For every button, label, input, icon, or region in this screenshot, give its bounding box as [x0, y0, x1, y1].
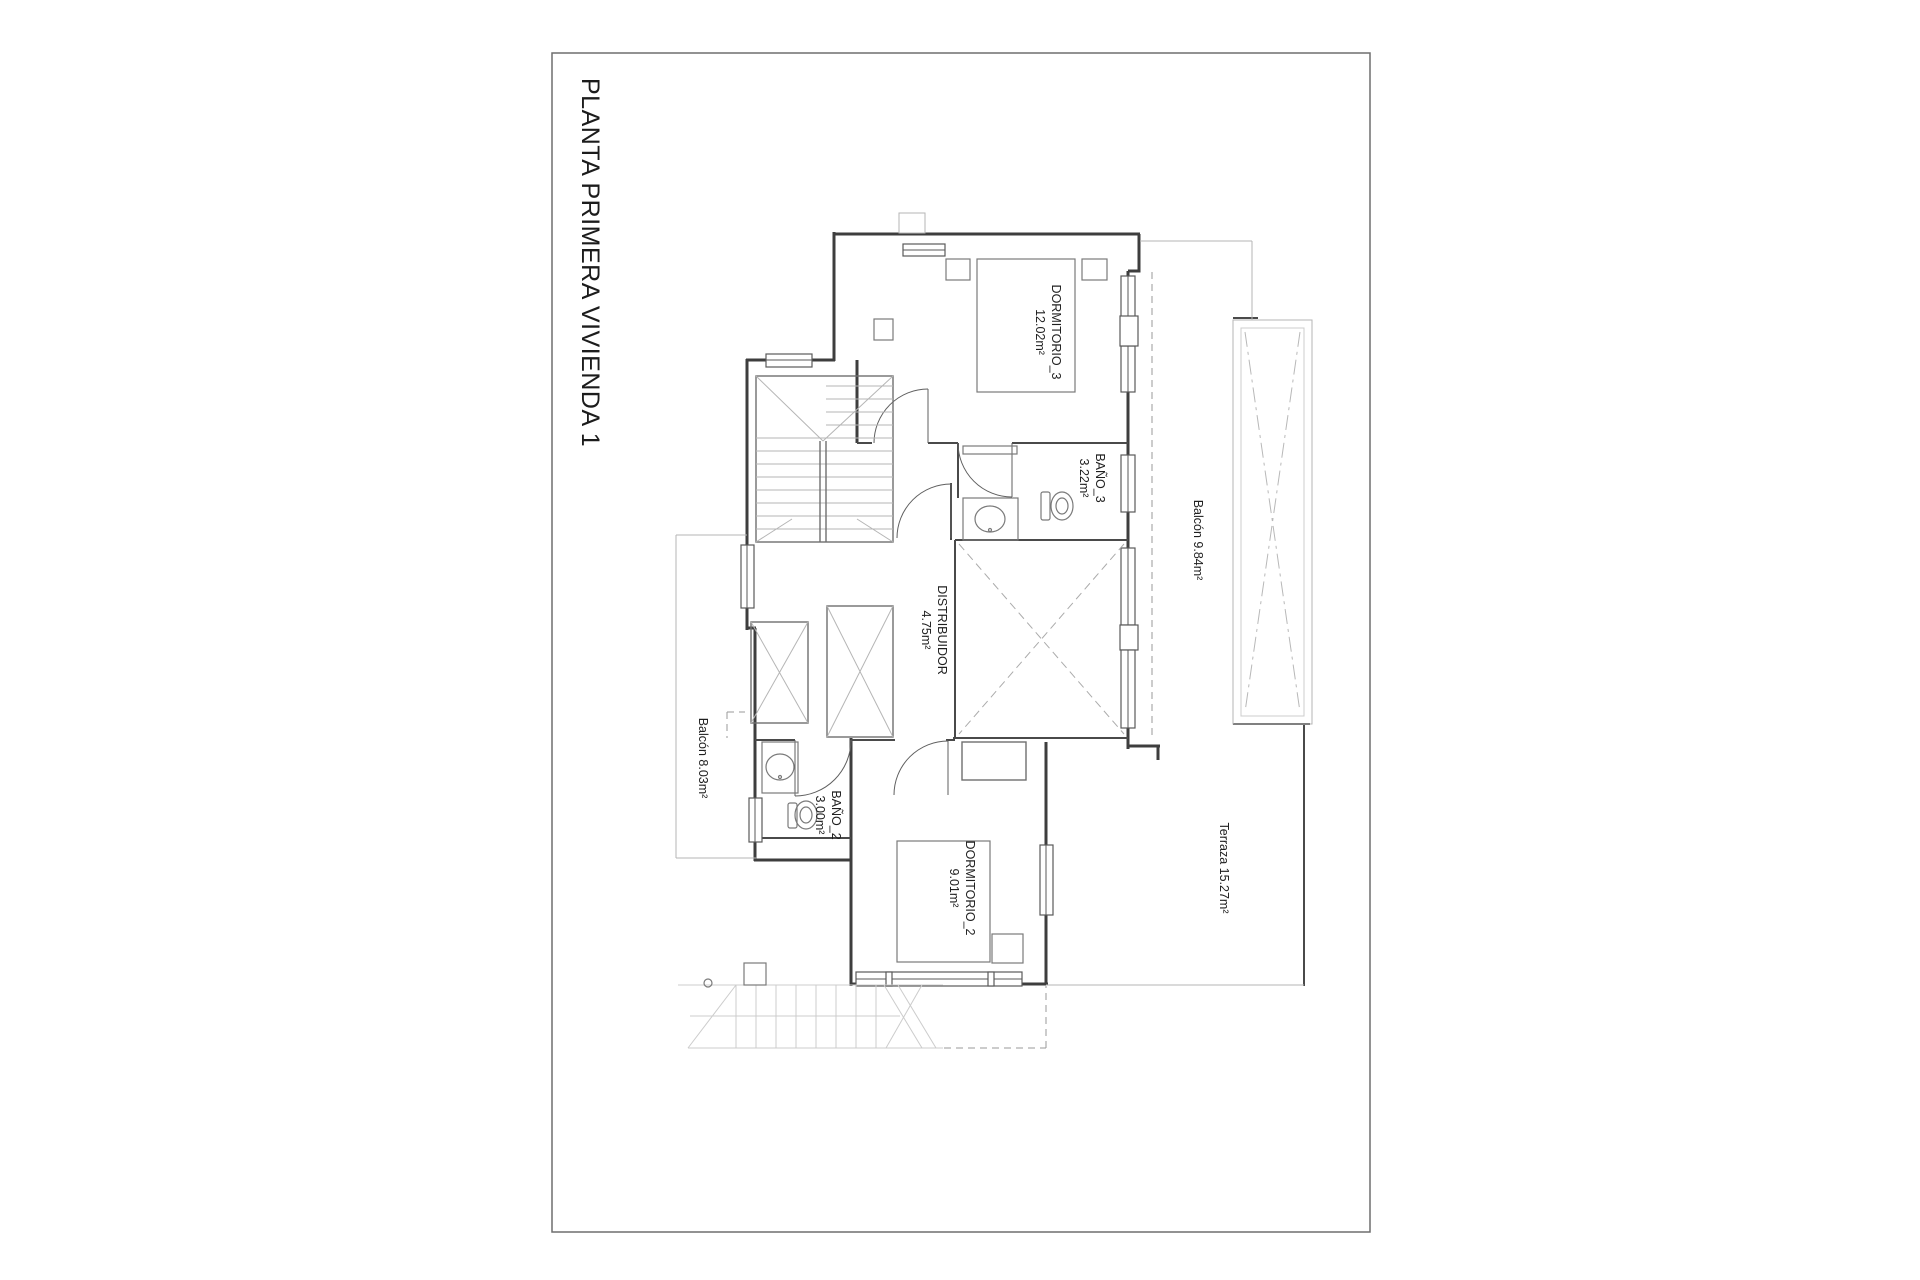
svg-text:3.00m²: 3.00m² — [813, 796, 827, 835]
window-symbol — [1121, 650, 1135, 728]
room-label-terraza: Terraza 15.27m² — [1217, 822, 1231, 913]
wall-pillar — [1120, 625, 1138, 650]
window-symbol — [1121, 346, 1135, 392]
window-symbol — [856, 972, 1022, 986]
svg-text:BAÑO_3: BAÑO_3 — [1093, 453, 1107, 502]
wall-pillar — [1120, 316, 1138, 346]
nightstand — [946, 259, 970, 280]
svg-text:DORMITORIO_3: DORMITORIO_3 — [1049, 285, 1063, 380]
svg-text:9.01m²: 9.01m² — [947, 869, 961, 908]
svg-text:DORMITORIO_2: DORMITORIO_2 — [963, 841, 977, 936]
window-symbol — [741, 545, 754, 608]
window-symbol — [1121, 276, 1135, 318]
svg-text:DISTRIBUIDOR: DISTRIBUIDOR — [935, 585, 949, 675]
window-symbol — [749, 798, 762, 842]
svg-text:Balcón 9.84m²: Balcón 9.84m² — [1191, 500, 1205, 581]
window-symbol — [1121, 548, 1135, 625]
svg-text:BAÑO_2: BAÑO_2 — [829, 790, 843, 839]
window-symbol — [1040, 845, 1053, 915]
window-symbol — [903, 244, 945, 256]
plan-sheet-page: PLANTA PRIMERA VIVIENDA 1 — [0, 0, 1920, 1280]
sheet-border — [552, 53, 1370, 1232]
side-table — [874, 319, 893, 340]
svg-text:4.75m²: 4.75m² — [919, 611, 933, 650]
window-symbol — [1121, 455, 1135, 512]
room-label-balcon-w: Balcón 8.03m² — [696, 718, 710, 799]
svg-text:3.22m²: 3.22m² — [1077, 459, 1091, 498]
svg-text:Balcón 8.03m²: Balcón 8.03m² — [696, 718, 710, 799]
nightstand — [992, 934, 1023, 963]
nightstand — [1082, 259, 1107, 280]
room-label-balcon-ne: Balcón 9.84m² — [1191, 500, 1205, 581]
svg-text:Terraza 15.27m²: Terraza 15.27m² — [1217, 822, 1231, 913]
window-symbol — [766, 354, 812, 367]
floorplan-canvas: PLANTA PRIMERA VIVIENDA 1 — [0, 0, 1920, 1280]
svg-text:12.02m²: 12.02m² — [1033, 309, 1047, 355]
sheet-title: PLANTA PRIMERA VIVIENDA 1 — [576, 78, 604, 447]
